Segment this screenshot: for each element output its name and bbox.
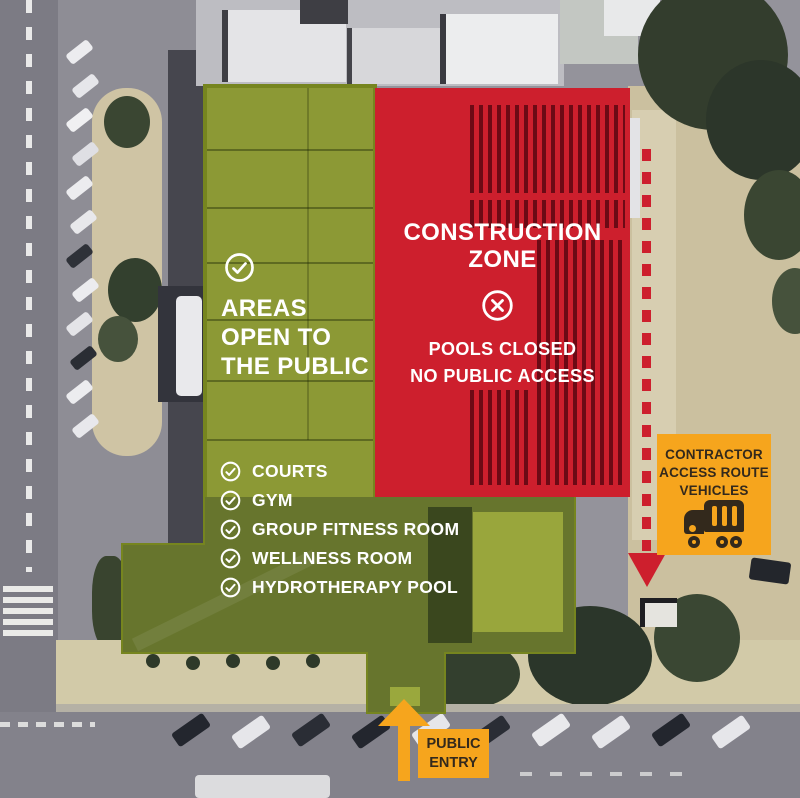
list-item: GROUP FITNESS ROOM	[220, 515, 459, 544]
truck-box	[704, 500, 744, 532]
open-areas-line3: THE PUBLIC	[221, 352, 391, 381]
amenity-label: GYM	[252, 490, 293, 511]
construction-sub-line1: POOLS CLOSED	[375, 336, 630, 363]
amenity-label: WELLNESS ROOM	[252, 548, 412, 569]
construction-zone-title: CONSTRUCTION ZONE	[375, 219, 630, 273]
check-circle-icon	[224, 252, 255, 283]
list-item: GYM	[220, 486, 459, 515]
pool-roof	[473, 512, 563, 632]
contractor-badge-text: CONTRACTOR ACCESS ROUTE VEHICLES	[657, 446, 771, 500]
contractor-route-dashed-line	[642, 149, 651, 551]
truck-cab	[684, 510, 704, 534]
check-circle-icon	[220, 577, 241, 598]
site-map: CONSTRUCTION ZONE POOLS CLOSED NO PUBLIC…	[0, 0, 800, 798]
public-entry-line2: ENTRY	[418, 754, 489, 773]
contractor-route-arrowhead	[628, 553, 666, 587]
construction-zone-subtitle: POOLS CLOSED NO PUBLIC ACCESS	[375, 336, 630, 390]
construction-sub-line2: NO PUBLIC ACCESS	[375, 363, 630, 390]
construction-title-line1: CONSTRUCTION	[375, 219, 630, 246]
amenity-list: COURTS GYM GROUP FITNESS ROOM WELLNESS R…	[220, 457, 459, 602]
contractor-line2: ACCESS ROUTE	[657, 464, 771, 482]
open-areas-line2: OPEN TO	[221, 323, 391, 352]
contractor-line3: VEHICLES	[657, 482, 771, 500]
pool-lanes	[470, 105, 625, 193]
open-areas-line1: AREAS	[221, 294, 391, 323]
amenity-label: GROUP FITNESS ROOM	[252, 519, 459, 540]
amenity-label: COURTS	[252, 461, 328, 482]
public-entry-badge: PUBLIC ENTRY	[418, 729, 489, 778]
public-entry-line1: PUBLIC	[418, 735, 489, 754]
list-item: WELLNESS ROOM	[220, 544, 459, 573]
public-entry-arrowhead	[378, 699, 430, 726]
x-circle-icon	[481, 289, 514, 322]
contractor-access-badge: CONTRACTOR ACCESS ROUTE VEHICLES	[657, 434, 771, 555]
construction-title-line2: ZONE	[375, 246, 630, 273]
check-circle-icon	[220, 548, 241, 569]
pool-lanes	[470, 390, 532, 485]
amenity-label: HYDROTHERAPY POOL	[252, 577, 458, 598]
check-circle-icon	[220, 519, 241, 540]
check-circle-icon	[220, 490, 241, 511]
list-item: HYDROTHERAPY POOL	[220, 573, 459, 602]
list-item: COURTS	[220, 457, 459, 486]
open-areas-title: AREAS OPEN TO THE PUBLIC	[221, 294, 391, 381]
check-circle-icon	[220, 461, 241, 482]
public-entry-arrow-shaft	[398, 723, 410, 781]
public-entry-text: PUBLIC ENTRY	[418, 735, 489, 773]
contractor-line1: CONTRACTOR	[657, 446, 771, 464]
truck-icon	[684, 500, 746, 546]
